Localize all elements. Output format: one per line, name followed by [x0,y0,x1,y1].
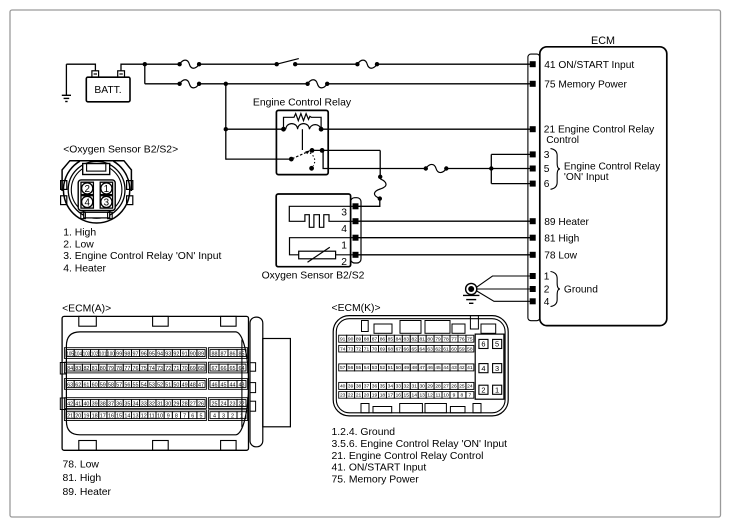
svg-text:73: 73 [157,366,163,372]
svg-text:1: 1 [341,240,347,251]
svg-text:54: 54 [364,365,370,371]
svg-text:1: 1 [495,385,499,394]
svg-text:45: 45 [435,365,441,371]
svg-text:86: 86 [380,337,386,343]
svg-text:89 Heater: 89 Heater [544,217,589,228]
svg-text:<ECM(K)>: <ECM(K)> [332,303,381,314]
svg-text:75. Memory Power: 75. Memory Power [332,474,420,485]
svg-text:24: 24 [467,384,473,390]
svg-text:25: 25 [459,384,465,390]
svg-text:72: 72 [165,366,171,372]
svg-text:61: 61 [83,382,89,388]
svg-text:40: 40 [83,402,89,408]
svg-text:5: 5 [544,164,550,175]
svg-text:1: 1 [104,184,109,195]
svg-text:67: 67 [212,366,218,372]
svg-text:70: 70 [372,347,378,353]
svg-text:49: 49 [404,365,410,371]
svg-text:64: 64 [239,366,245,372]
svg-text:89. Heater: 89. Heater [63,487,112,498]
svg-text:31: 31 [157,402,163,408]
svg-text:81: 81 [92,366,98,372]
svg-text:1.2.4. Ground: 1.2.4. Ground [332,427,396,438]
svg-text:11: 11 [149,414,155,420]
svg-text:15: 15 [116,414,122,420]
svg-text:4: 4 [341,224,347,235]
svg-text:66: 66 [221,366,227,372]
svg-text:26: 26 [198,402,204,408]
svg-text:Control: Control [546,135,579,146]
svg-text:<Oxygen Sensor B2/S2>: <Oxygen Sensor B2/S2> [63,144,178,155]
svg-text:36: 36 [372,384,378,390]
svg-text:63: 63 [67,382,73,388]
svg-text:32: 32 [149,402,155,408]
svg-text:81: 81 [419,337,425,343]
svg-text:54: 54 [141,382,147,388]
svg-text:55: 55 [133,382,139,388]
svg-text:34: 34 [133,402,139,408]
svg-text:84: 84 [67,366,73,372]
svg-text:41. ON/START Input: 41. ON/START Input [332,463,427,474]
svg-text:103: 103 [83,352,90,358]
svg-text:7: 7 [469,393,472,399]
svg-text:65: 65 [230,366,236,372]
svg-text:38: 38 [356,384,362,390]
svg-text:79: 79 [435,337,441,343]
svg-text:51: 51 [388,365,394,371]
svg-text:76: 76 [459,337,465,343]
svg-text:105: 105 [66,352,73,358]
svg-text:27: 27 [443,384,449,390]
svg-text:78: 78 [443,337,449,343]
svg-text:36: 36 [116,402,122,408]
svg-text:61: 61 [443,347,449,353]
svg-text:99: 99 [116,352,122,358]
svg-text:75: 75 [467,337,473,343]
svg-text:71: 71 [173,366,179,372]
svg-text:21 Engine Control Relay: 21 Engine Control Relay [544,125,655,136]
svg-text:7: 7 [183,414,186,420]
svg-text:91: 91 [182,352,188,358]
svg-text:87: 87 [372,337,378,343]
svg-text:95: 95 [149,352,155,358]
svg-text:33: 33 [141,402,147,408]
svg-text:24: 24 [221,402,227,408]
svg-text:87: 87 [221,352,227,358]
svg-text:26: 26 [451,384,457,390]
svg-text:56: 56 [348,365,354,371]
svg-text:3: 3 [104,197,110,208]
svg-text:23: 23 [230,402,236,408]
svg-text:73: 73 [348,347,354,353]
svg-text:19: 19 [372,393,378,399]
svg-text:44: 44 [230,382,236,388]
svg-text:22: 22 [348,393,354,399]
svg-text:4: 4 [544,297,550,308]
svg-text:4. Heater: 4. Heater [63,263,106,274]
svg-text:5: 5 [495,340,499,349]
svg-text:67: 67 [396,347,402,353]
svg-text:3: 3 [222,414,225,420]
svg-text:86: 86 [230,352,236,358]
svg-text:40: 40 [340,384,346,390]
svg-text:80: 80 [100,366,106,372]
svg-text:96: 96 [141,352,147,358]
svg-text:ECM: ECM [591,35,615,47]
svg-text:78 Low: 78 Low [544,250,577,261]
svg-text:31: 31 [411,384,417,390]
svg-text:3. Engine Control Relay 'ON' I: 3. Engine Control Relay 'ON' Input [63,251,221,262]
svg-text:10: 10 [157,414,163,420]
svg-text:80: 80 [427,337,433,343]
svg-text:85: 85 [239,352,245,358]
svg-text:79: 79 [108,366,114,372]
svg-text:4: 4 [481,364,485,373]
svg-text:52: 52 [157,382,163,388]
svg-text:66: 66 [404,347,410,353]
svg-text:45: 45 [221,382,227,388]
svg-text:74: 74 [149,366,155,372]
svg-text:BATT.: BATT. [94,85,121,96]
svg-text:41 ON/START Input: 41 ON/START Input [544,60,634,71]
svg-text:34: 34 [388,384,394,390]
svg-text:9: 9 [167,414,170,420]
svg-text:69: 69 [190,366,196,372]
svg-text:12: 12 [141,414,147,420]
svg-text:3: 3 [544,150,550,161]
svg-text:2: 2 [84,184,89,195]
svg-text:75 Memory Power: 75 Memory Power [544,79,627,90]
svg-text:50: 50 [173,382,179,388]
svg-text:16: 16 [108,414,114,420]
svg-text:64: 64 [419,347,425,353]
svg-text:1. High: 1. High [63,228,96,239]
svg-text:48: 48 [411,365,417,371]
svg-text:58: 58 [108,382,114,388]
svg-text:75: 75 [141,366,147,372]
svg-text:70: 70 [182,366,188,372]
svg-text:77: 77 [451,337,457,343]
svg-text:90: 90 [190,352,196,358]
svg-text:28: 28 [435,384,441,390]
svg-text:71: 71 [364,347,370,353]
svg-text:5: 5 [199,414,202,420]
svg-text:82: 82 [83,366,89,372]
svg-text:Oxygen Sensor B2/S2: Oxygen Sensor B2/S2 [262,271,365,282]
svg-text:37: 37 [364,384,370,390]
svg-text:35: 35 [124,402,130,408]
svg-text:2: 2 [544,285,550,296]
svg-text:43: 43 [239,382,245,388]
svg-text:8: 8 [461,393,464,399]
svg-text:28: 28 [182,402,188,408]
svg-text:13: 13 [133,414,139,420]
svg-text:92: 92 [173,352,179,358]
svg-text:59: 59 [459,347,465,353]
svg-text:25: 25 [212,402,218,408]
svg-text:68: 68 [388,347,394,353]
svg-text:20: 20 [75,414,81,420]
svg-text:16: 16 [396,393,402,399]
svg-text:9: 9 [453,393,456,399]
svg-text:76: 76 [133,366,139,372]
svg-text:102: 102 [91,352,98,358]
svg-text:47: 47 [419,365,425,371]
svg-text:77: 77 [124,366,130,372]
svg-text:37: 37 [108,402,114,408]
svg-text:4: 4 [84,197,90,208]
svg-text:51: 51 [165,382,171,388]
svg-text:38: 38 [100,402,106,408]
svg-text:8: 8 [175,414,178,420]
svg-text:6: 6 [481,340,485,349]
svg-text:83: 83 [404,337,410,343]
svg-text:30: 30 [419,384,425,390]
svg-text:88: 88 [364,337,370,343]
svg-text:98: 98 [124,352,130,358]
svg-text:58: 58 [467,347,473,353]
svg-text:85: 85 [388,337,394,343]
svg-text:90: 90 [348,337,354,343]
svg-text:41: 41 [467,365,473,371]
svg-text:57: 57 [340,365,346,371]
svg-text:60: 60 [451,347,457,353]
svg-text:39: 39 [92,402,98,408]
svg-text:35: 35 [380,384,386,390]
svg-text:42: 42 [67,402,73,408]
svg-text:60: 60 [92,382,98,388]
svg-text:6: 6 [544,179,550,190]
svg-text:2: 2 [231,414,234,420]
svg-text:97: 97 [133,352,139,358]
svg-text:62: 62 [75,382,81,388]
svg-text:100: 100 [107,352,114,358]
svg-text:49: 49 [182,382,188,388]
svg-text:21: 21 [356,393,362,399]
svg-text:Engine Control Relay: Engine Control Relay [253,97,352,108]
svg-text:94: 94 [157,352,163,358]
svg-text:46: 46 [212,382,218,388]
svg-text:101: 101 [99,352,106,358]
svg-text:27: 27 [190,402,196,408]
svg-text:104: 104 [75,352,82,358]
svg-text:81. High: 81. High [63,473,102,484]
svg-text:1: 1 [240,414,243,420]
svg-text:2. Low: 2. Low [63,239,94,250]
svg-text:50: 50 [396,365,402,371]
svg-text:29: 29 [173,402,179,408]
svg-text:6: 6 [191,414,194,420]
svg-text:13: 13 [419,393,425,399]
svg-text:69: 69 [380,347,386,353]
svg-text:21: 21 [67,414,73,420]
svg-text:48: 48 [190,382,196,388]
svg-text:57: 57 [116,382,122,388]
svg-text:89: 89 [356,337,362,343]
svg-text:Engine Control Relay: Engine Control Relay [564,161,661,172]
svg-text:53: 53 [149,382,155,388]
svg-text:<ECM(A)>: <ECM(A)> [62,303,111,314]
svg-text:17: 17 [100,414,106,420]
svg-text:39: 39 [348,384,354,390]
svg-text:53: 53 [372,365,378,371]
svg-text:10: 10 [443,393,449,399]
svg-text:83: 83 [75,366,81,372]
svg-text:43: 43 [451,365,457,371]
svg-text:62: 62 [435,347,441,353]
svg-text:14: 14 [124,414,130,420]
svg-text:44: 44 [443,365,449,371]
svg-text:22: 22 [239,402,245,408]
svg-text:33: 33 [396,384,402,390]
svg-text:17: 17 [388,393,394,399]
svg-text:59: 59 [100,382,106,388]
svg-text:89: 89 [198,352,204,358]
svg-text:4: 4 [213,414,216,420]
svg-text:55: 55 [356,365,362,371]
svg-text:23: 23 [340,393,346,399]
svg-text:82: 82 [411,337,417,343]
svg-text:47: 47 [198,382,204,388]
svg-text:2: 2 [341,257,347,268]
svg-text:18: 18 [380,393,386,399]
svg-text:12: 12 [427,393,433,399]
svg-text:32: 32 [404,384,410,390]
svg-text:3.5.6. Engine Control Relay 'O: 3.5.6. Engine Control Relay 'ON' Input [332,439,508,450]
svg-text:78: 78 [116,366,122,372]
svg-text:42: 42 [459,365,465,371]
svg-text:68: 68 [198,366,204,372]
svg-text:65: 65 [411,347,417,353]
svg-text:15: 15 [404,393,410,399]
svg-text:3: 3 [495,364,499,373]
svg-text:63: 63 [427,347,433,353]
svg-text:88: 88 [212,352,218,358]
svg-text:19: 19 [83,414,89,420]
svg-text:46: 46 [427,365,433,371]
svg-text:18: 18 [92,414,98,420]
svg-text:21. Engine Control Relay Contr: 21. Engine Control Relay Control [332,451,484,462]
svg-text:93: 93 [165,352,171,358]
svg-text:56: 56 [124,382,130,388]
svg-text:'ON' Input: 'ON' Input [564,172,609,183]
svg-text:Ground: Ground [564,285,598,296]
svg-text:20: 20 [364,393,370,399]
svg-text:74: 74 [340,347,346,353]
svg-text:78. Low: 78. Low [63,460,100,471]
svg-text:81 High: 81 High [544,233,579,244]
svg-text:72: 72 [356,347,362,353]
svg-text:2: 2 [481,385,485,394]
svg-text:1: 1 [544,272,550,283]
svg-text:14: 14 [411,393,417,399]
svg-text:30: 30 [165,402,171,408]
svg-text:91: 91 [340,337,346,343]
svg-text:29: 29 [427,384,433,390]
svg-text:41: 41 [75,402,81,408]
svg-text:3: 3 [341,208,347,219]
svg-text:52: 52 [380,365,386,371]
svg-text:11: 11 [436,393,441,399]
svg-text:84: 84 [396,337,402,343]
